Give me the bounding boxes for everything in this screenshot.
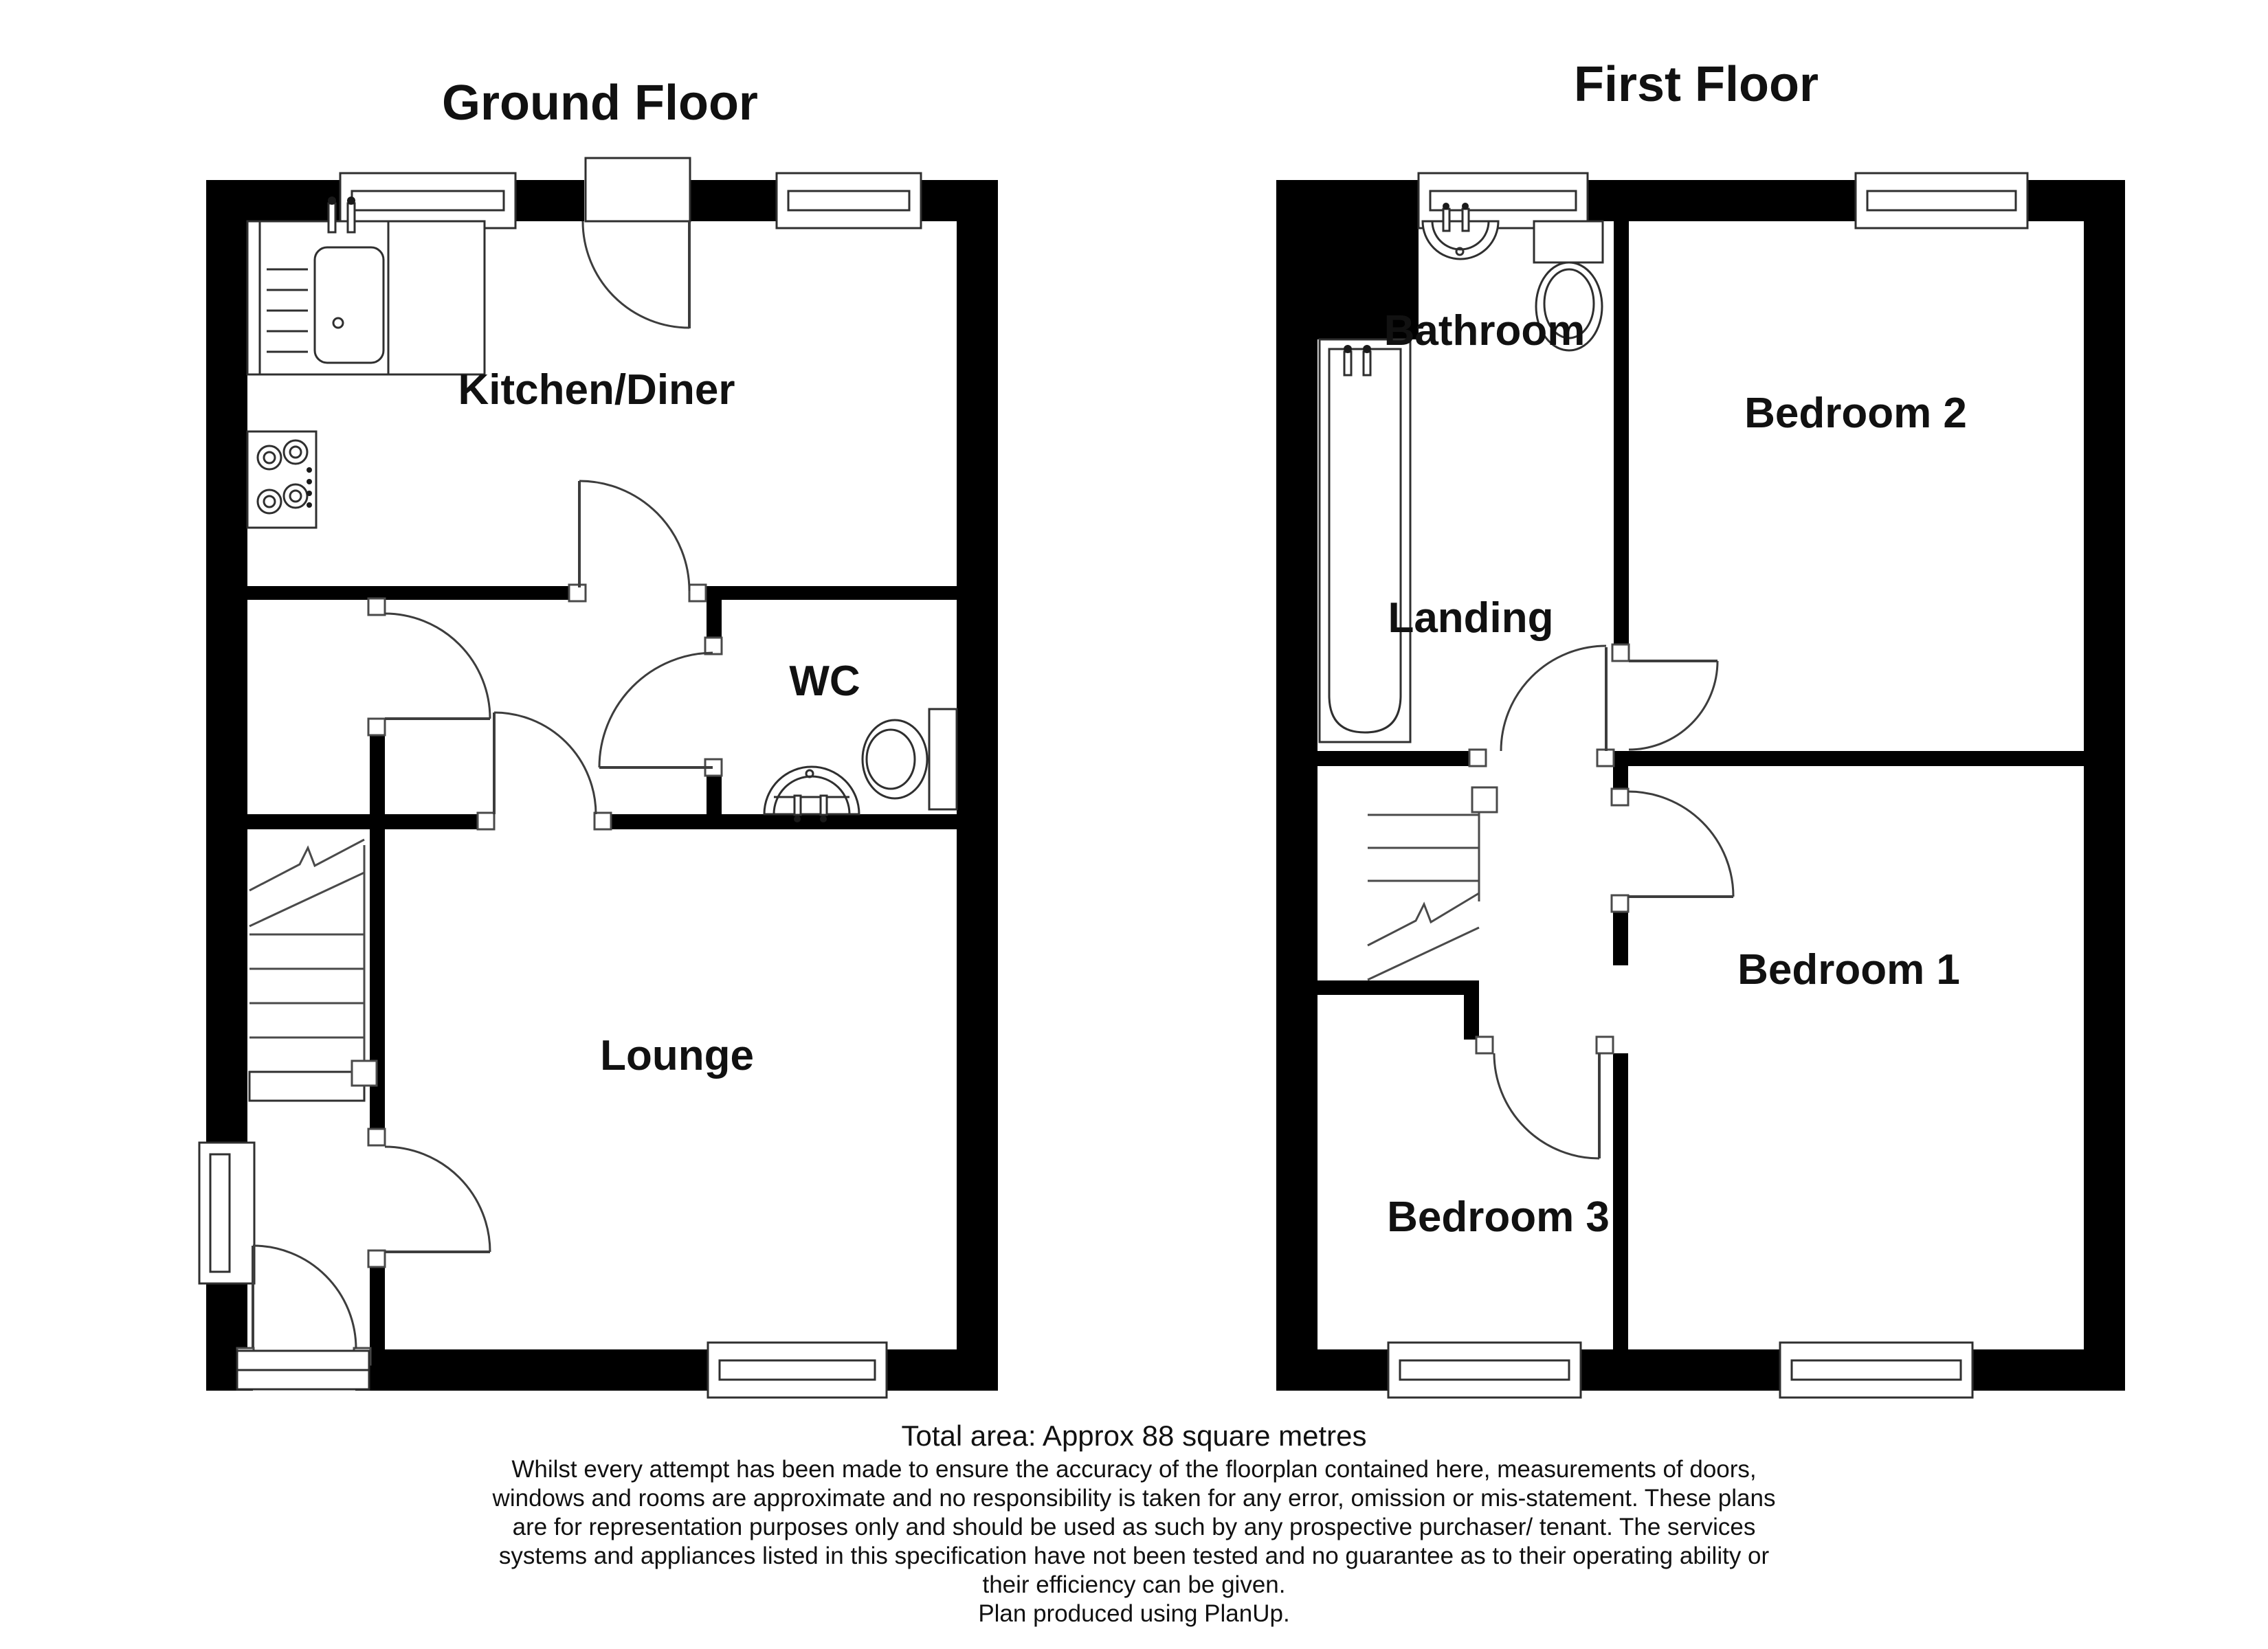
- disclaimer-line: their efficiency can be given.: [982, 1571, 1285, 1598]
- wall-hall-lounge: [611, 814, 957, 829]
- wall-bed2-bed1: [1614, 751, 2084, 766]
- room-label-bathroom: Bathroom: [1384, 307, 1586, 355]
- window: [1780, 1343, 1972, 1398]
- room-label-landing: Landing: [1388, 594, 1553, 642]
- wall-segment: [921, 180, 998, 221]
- door-stop: [1469, 750, 1486, 766]
- door-arc: [1494, 1053, 1599, 1158]
- window: [199, 1143, 254, 1283]
- door-arc: [494, 713, 596, 814]
- room-label-wc: WC: [789, 658, 860, 705]
- window: [708, 1343, 887, 1398]
- floorplan-canvas: Kitchen/Diner WC Lounge: [0, 0, 2268, 1649]
- door-stop: [705, 638, 722, 654]
- ground-floor-plan: Kitchen/Diner WC Lounge: [199, 158, 998, 1398]
- front-door: [237, 1246, 370, 1389]
- wall-kitchen-hall: [247, 586, 570, 600]
- entrance-lounge-door: [368, 1129, 490, 1267]
- wall-segment: [355, 1349, 708, 1391]
- bedroom-3-door: [1476, 1037, 1613, 1158]
- wall-segment: [2027, 180, 2125, 221]
- door-arc: [1501, 646, 1606, 751]
- wc-basin-icon: [764, 767, 859, 822]
- kitchen-sink-unit: [247, 197, 485, 374]
- door-stop: [1597, 1037, 1613, 1053]
- room-label-lounge: Lounge: [600, 1032, 754, 1079]
- room-label-bedroom-1: Bedroom 1: [1737, 946, 1960, 994]
- wall-segment: [2084, 180, 2125, 1391]
- wall-hall-lounge: [247, 814, 479, 829]
- door-arc: [253, 1246, 356, 1349]
- door-stop: [1597, 750, 1614, 766]
- newel-post: [352, 1061, 377, 1086]
- door-arc: [385, 614, 490, 719]
- stair-break-line: [1368, 893, 1479, 945]
- sink-basin-icon: [315, 247, 383, 363]
- door-arc: [599, 653, 713, 767]
- cistern: [929, 709, 957, 809]
- wall-bathroom-landing: [1318, 751, 1471, 766]
- bathtub-icon: [1320, 339, 1410, 742]
- newel-post: [1472, 787, 1497, 812]
- door-arc: [1629, 661, 1717, 750]
- door-stop: [368, 598, 385, 615]
- wall-segment: [1276, 180, 1318, 1391]
- wall-bathroom-bed2: [1614, 221, 1629, 646]
- door-arc: [579, 481, 689, 591]
- back-door: [583, 158, 690, 328]
- wall-wc: [707, 600, 722, 639]
- door-stop: [569, 585, 586, 601]
- wall-segment: [206, 180, 340, 221]
- wall-segment: [1276, 1349, 1388, 1391]
- door-stop: [368, 1129, 385, 1145]
- produced-by-text: Plan produced using PlanUp.: [978, 1600, 1289, 1627]
- cistern: [1534, 221, 1603, 262]
- door-stop: [594, 813, 611, 829]
- wc-toilet-icon: [863, 709, 957, 809]
- door-stop: [689, 585, 706, 601]
- disclaimer-line: windows and rooms are approximate and no…: [492, 1485, 1776, 1512]
- window: [1388, 1343, 1581, 1398]
- wall-landing-bed1: [1613, 912, 1628, 965]
- stair-break-line: [249, 840, 364, 890]
- door-stop: [1612, 644, 1629, 661]
- disclaimer-line: are for representation purposes only and…: [513, 1514, 1756, 1540]
- room-label-bedroom-2: Bedroom 2: [1744, 390, 1967, 437]
- stair-break-line: [1368, 928, 1479, 980]
- wall-segment: [1276, 180, 1419, 221]
- wall-segment: [887, 1349, 998, 1391]
- wall-hall-stairs: [370, 734, 385, 814]
- bedroom-1-door: [1612, 789, 1733, 912]
- wall-segment: [691, 180, 777, 221]
- window: [1856, 173, 2027, 228]
- door-arc: [385, 1147, 490, 1252]
- window: [340, 173, 515, 228]
- door-stop: [478, 813, 494, 829]
- wall-segment: [957, 180, 998, 1391]
- door-stop: [368, 1250, 385, 1267]
- disclaimer-line: systems and appliances listed in this sp…: [499, 1543, 1770, 1569]
- hall-stairs-door: [368, 598, 490, 735]
- wall-bed3-landing: [1316, 980, 1479, 995]
- wall-bed3-bed1: [1613, 1053, 1628, 1349]
- wall-segment: [1581, 1349, 1780, 1391]
- door-stop: [1476, 1037, 1493, 1053]
- staircase-first: [1368, 787, 1497, 980]
- hob-icon: [247, 431, 316, 528]
- wall-kitchen-hall: [706, 586, 957, 600]
- door-arc: [583, 221, 689, 328]
- door-stop: [1612, 895, 1628, 912]
- room-label-kitchen-diner: Kitchen/Diner: [458, 366, 735, 414]
- stair-base: [249, 1072, 364, 1101]
- wall-segment: [515, 180, 584, 221]
- door-stop: [368, 719, 385, 735]
- wall-bed3-landing: [1464, 995, 1479, 1040]
- room-label-bedroom-3: Bedroom 3: [1387, 1193, 1610, 1241]
- bowl: [863, 720, 927, 798]
- door-panel: [586, 158, 690, 221]
- total-area-text: Total area: Approx 88 square metres: [901, 1420, 1366, 1452]
- wall-entrance-lounge: [370, 1267, 385, 1349]
- window: [777, 173, 921, 228]
- wall-segment: [1972, 1349, 2125, 1391]
- wall-segment: [1588, 180, 1856, 221]
- hall-lounge-door: [478, 713, 611, 829]
- first-floor-plan: Bathroom Bedroom 2 Landing Bedroom 1 Bed…: [1276, 173, 2125, 1398]
- floorplan-page: Kitchen/Diner WC Lounge: [0, 0, 2268, 1649]
- footer: Total area: Approx 88 square metres Whil…: [492, 1420, 1776, 1627]
- bedroom-2-door: [1612, 644, 1717, 750]
- first-floor-title: First Floor: [1574, 57, 1819, 112]
- bathroom-door: [1469, 646, 1614, 766]
- staircase-ground: [249, 840, 377, 1101]
- door-arc: [1628, 792, 1733, 897]
- wall-wc: [707, 776, 722, 814]
- wall-landing-bed1: [1613, 766, 1628, 790]
- kitchen-hall-door: [569, 481, 706, 601]
- ground-floor-title: Ground Floor: [442, 76, 758, 131]
- wc-door: [599, 638, 722, 776]
- door-stop: [1612, 789, 1628, 805]
- disclaimer-line: Whilst every attempt has been made to en…: [511, 1456, 1756, 1483]
